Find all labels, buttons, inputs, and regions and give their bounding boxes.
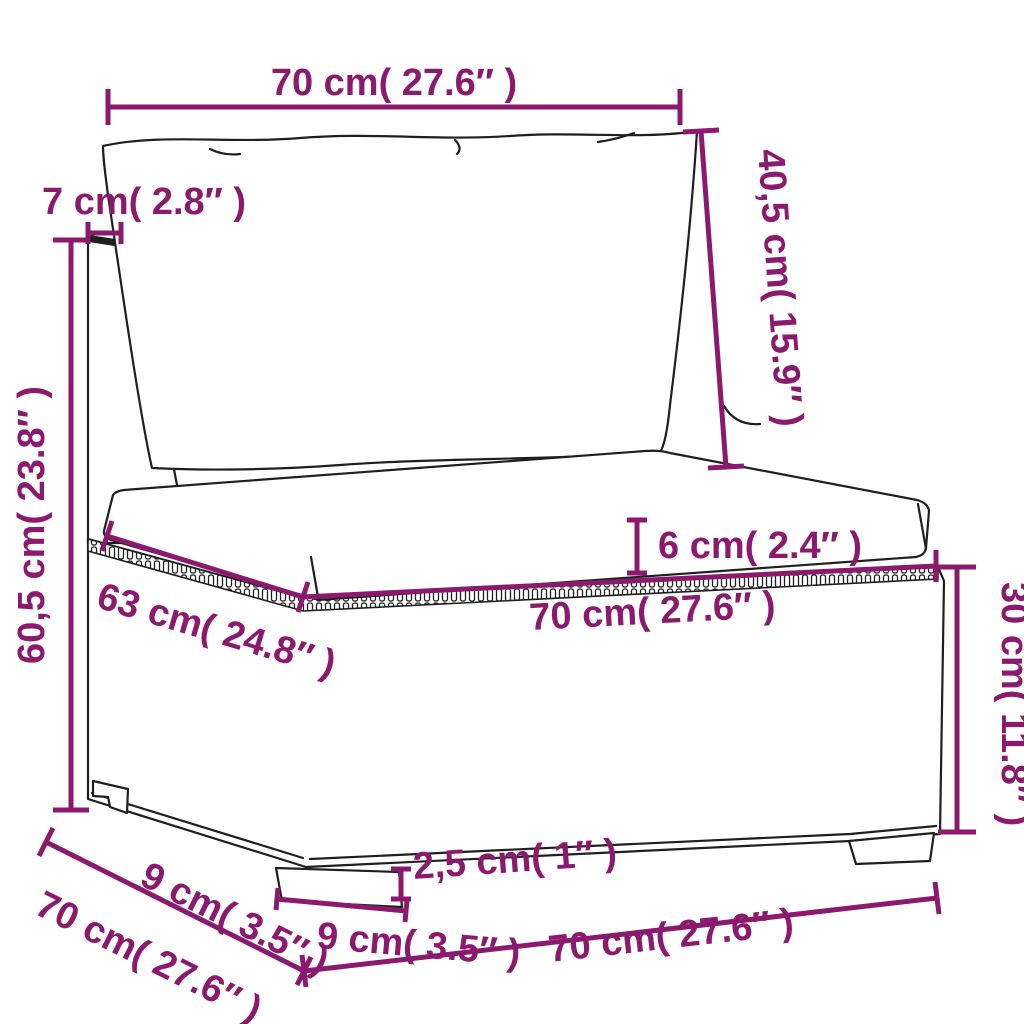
sofa-drawing — [86, 131, 944, 907]
dim-seat-cushion-thickness: 6 cm( 2.4″ ) — [627, 520, 862, 573]
dim-label-back-cushion-width: 70 cm( 27.6″ ) — [271, 62, 517, 104]
dim-leg-height: 2,5 cm( 1″ ) — [391, 832, 618, 899]
dim-label-seat-cushion-thickness: 6 cm( 2.4″ ) — [658, 525, 862, 567]
leg-right — [849, 833, 934, 864]
dim-label-total-height: 60,5 cm( 23.8″ ) — [11, 386, 53, 664]
back-cushion-corner-seam — [724, 406, 760, 424]
dim-back-cushion-height: 40,5 cm( 15.9″ ) — [683, 130, 810, 468]
leg-back-left — [93, 781, 128, 813]
dim-back-cushion-width: 70 cm( 27.6″ ) — [108, 62, 680, 125]
dim-label-back-post-depth: 7 cm( 2.8″ ) — [42, 181, 246, 223]
sofa-dimension-svg: 70 cm( 27.6″ ) 7 cm( 2.8″ ) 60,5 cm( 23.… — [0, 0, 1024, 1024]
dim-side-depth: 9 cm( 3.5″ ) 70 cm( 27.6″ ) — [29, 828, 335, 1024]
dim-label-total-width: 70 cm( 27.6″ ) — [546, 901, 796, 971]
dim-label-leg-height: 2,5 cm( 1″ ) — [412, 832, 619, 888]
dim-base-height: 30 cm( 11.8″ ) — [938, 567, 1024, 832]
dim-label-back-cushion-height: 40,5 cm( 15.9″ ) — [749, 148, 810, 428]
dimension-diagram: 70 cm( 27.6″ ) 7 cm( 2.8″ ) 60,5 cm( 23.… — [0, 0, 1024, 1024]
dim-total-height: 60,5 cm( 23.8″ ) — [11, 240, 89, 810]
dim-label-base-height: 30 cm( 11.8″ ) — [993, 582, 1024, 826]
